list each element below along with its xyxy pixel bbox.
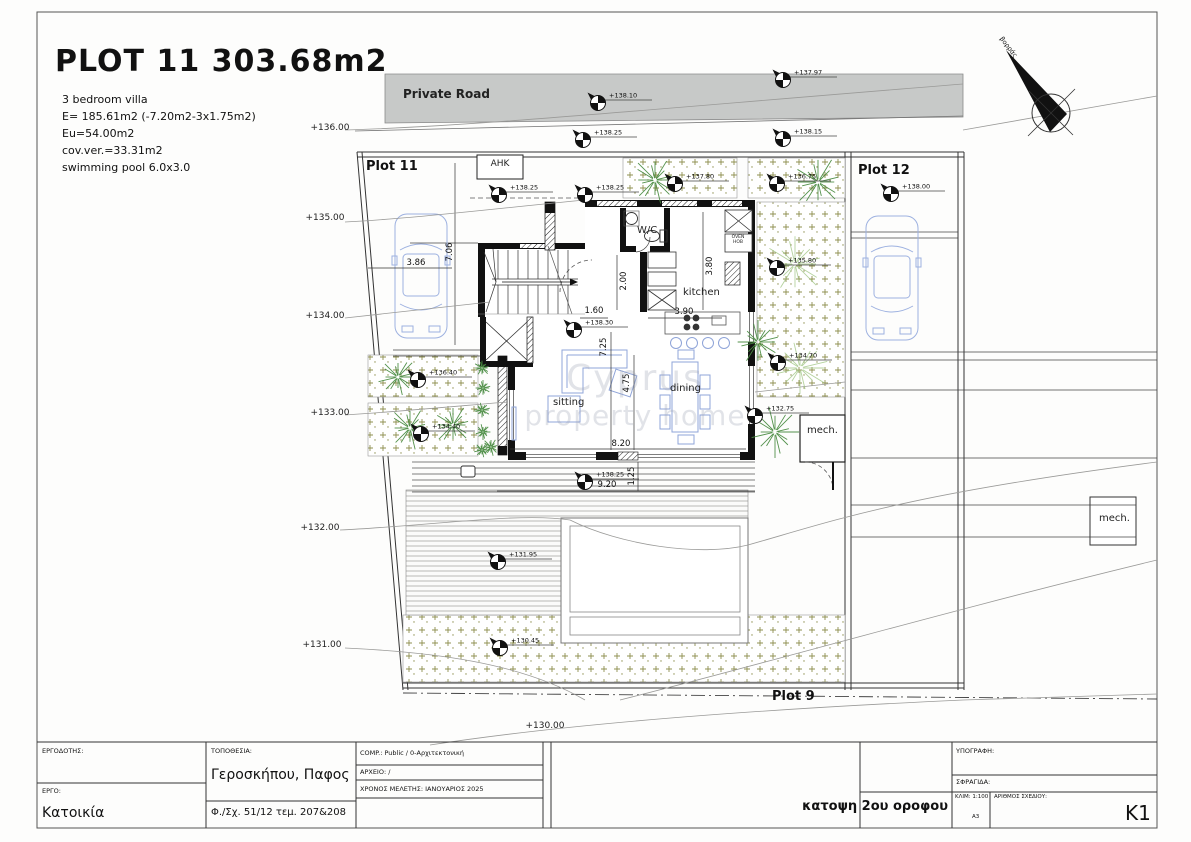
spot-elevation-value: +138.25	[594, 129, 622, 137]
spot-elevation-value: +138.25	[510, 184, 538, 192]
spot-elevation-value: +138.25	[596, 184, 624, 192]
spot-elevation-value: +138.30	[585, 319, 613, 327]
spot-elevation-value: +134.40	[432, 423, 460, 431]
spot-elevation: +138.00	[881, 183, 946, 202]
spot-elevation: +138.15	[773, 128, 838, 147]
title-block-grid	[37, 742, 1157, 828]
spot-elevation: +138.25	[573, 129, 638, 148]
right-site-lines	[851, 232, 1157, 537]
private-road	[355, 74, 963, 131]
spot-elevation-value: +138.10	[609, 92, 637, 100]
plot9-axis-line	[403, 693, 1157, 699]
spot-elevation-value: +136.75	[788, 173, 816, 181]
plan-drawing: +138.10+138.25+137.97+138.15+138.00+138.…	[0, 0, 1191, 842]
tree	[484, 440, 497, 456]
mech-room	[800, 415, 845, 490]
swimming-pool	[561, 518, 748, 643]
car-plot12	[863, 216, 921, 340]
spot-elevation-value: +138.00	[902, 183, 930, 191]
spot-elevation-value: +138.15	[794, 128, 822, 136]
spot-elevation-value: +131.95	[509, 551, 537, 559]
spot-elevation-value: +138.25	[596, 471, 624, 479]
spot-elevation-value: +132.75	[766, 405, 794, 413]
drawing-sheet: +138.10+138.25+137.97+138.15+138.00+138.…	[0, 0, 1191, 842]
spot-elevation: +138.25	[489, 184, 554, 203]
spot-elevation-value: +137.80	[686, 173, 714, 181]
car-plot11	[392, 214, 450, 338]
spot-elevation-value: +134.70	[789, 352, 817, 360]
ahk-box	[477, 155, 523, 179]
mech-box-right	[1090, 497, 1136, 545]
north-arrow	[1006, 50, 1075, 136]
spot-elevation-value: +136.40	[429, 369, 457, 377]
spot-elevation-value: +135.80	[788, 257, 816, 265]
parking-lines	[393, 243, 480, 356]
spot-elevation-value: +137.97	[794, 69, 822, 77]
spot-elevation-value: +130.45	[511, 637, 539, 645]
